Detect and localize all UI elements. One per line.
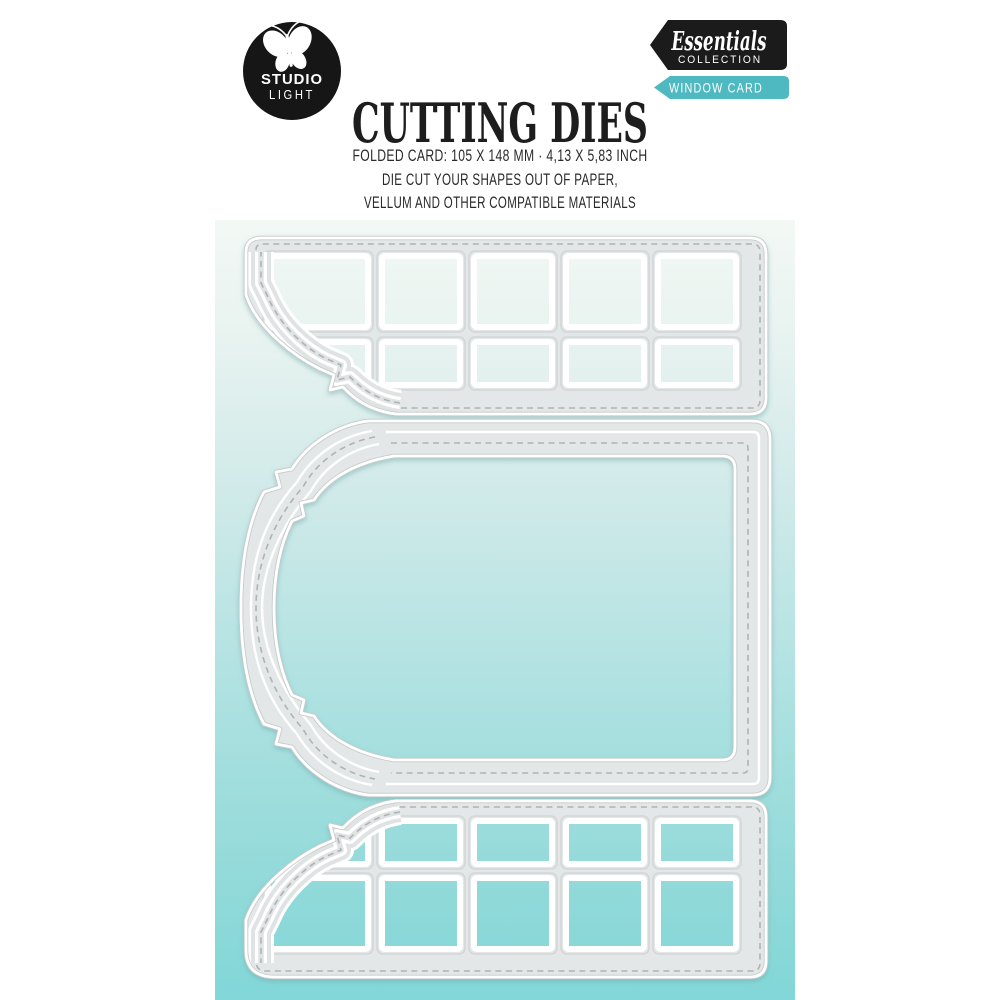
window-opening	[658, 878, 736, 949]
window-opening	[382, 342, 460, 385]
window-opening	[474, 821, 552, 864]
window-opening	[658, 342, 736, 385]
window-opening	[566, 821, 644, 864]
window-opening	[658, 256, 736, 327]
window-opening	[566, 878, 644, 949]
collection-script-label: Essentials	[671, 27, 767, 57]
brand-name-light: LIGHT	[269, 87, 315, 102]
studio-light-logo: STUDIO LIGHT	[243, 19, 341, 120]
product-image: STUDIO LIGHT Essentials COLLECTION WINDO…	[0, 0, 1000, 1000]
collection-caps-label: COLLECTION	[678, 54, 762, 66]
spec-line: FOLDED CARD: 105 X 148 MM · 4,13 X 5,83 …	[353, 146, 648, 165]
window-opening	[474, 342, 552, 385]
product-artwork: STUDIO LIGHT Essentials COLLECTION WINDO…	[0, 0, 1000, 1000]
description-line-1: DIE CUT YOUR SHAPES OUT OF PAPER,	[382, 170, 618, 189]
window-opening	[382, 256, 460, 327]
description-line-2: VELLUM AND OTHER COMPATIBLE MATERIALS	[364, 193, 636, 212]
window-opening	[474, 878, 552, 949]
essentials-collection-badge: Essentials COLLECTION	[650, 20, 787, 70]
window-opening	[382, 878, 460, 949]
brand-name-studio: STUDIO	[261, 71, 323, 88]
window-opening	[658, 821, 736, 864]
product-type-label: WINDOW CARD	[669, 80, 763, 96]
window-opening	[566, 342, 644, 385]
window-opening	[382, 821, 460, 864]
window-opening	[474, 256, 552, 327]
window-card-badge: WINDOW CARD	[654, 76, 789, 99]
window-opening	[566, 256, 644, 327]
